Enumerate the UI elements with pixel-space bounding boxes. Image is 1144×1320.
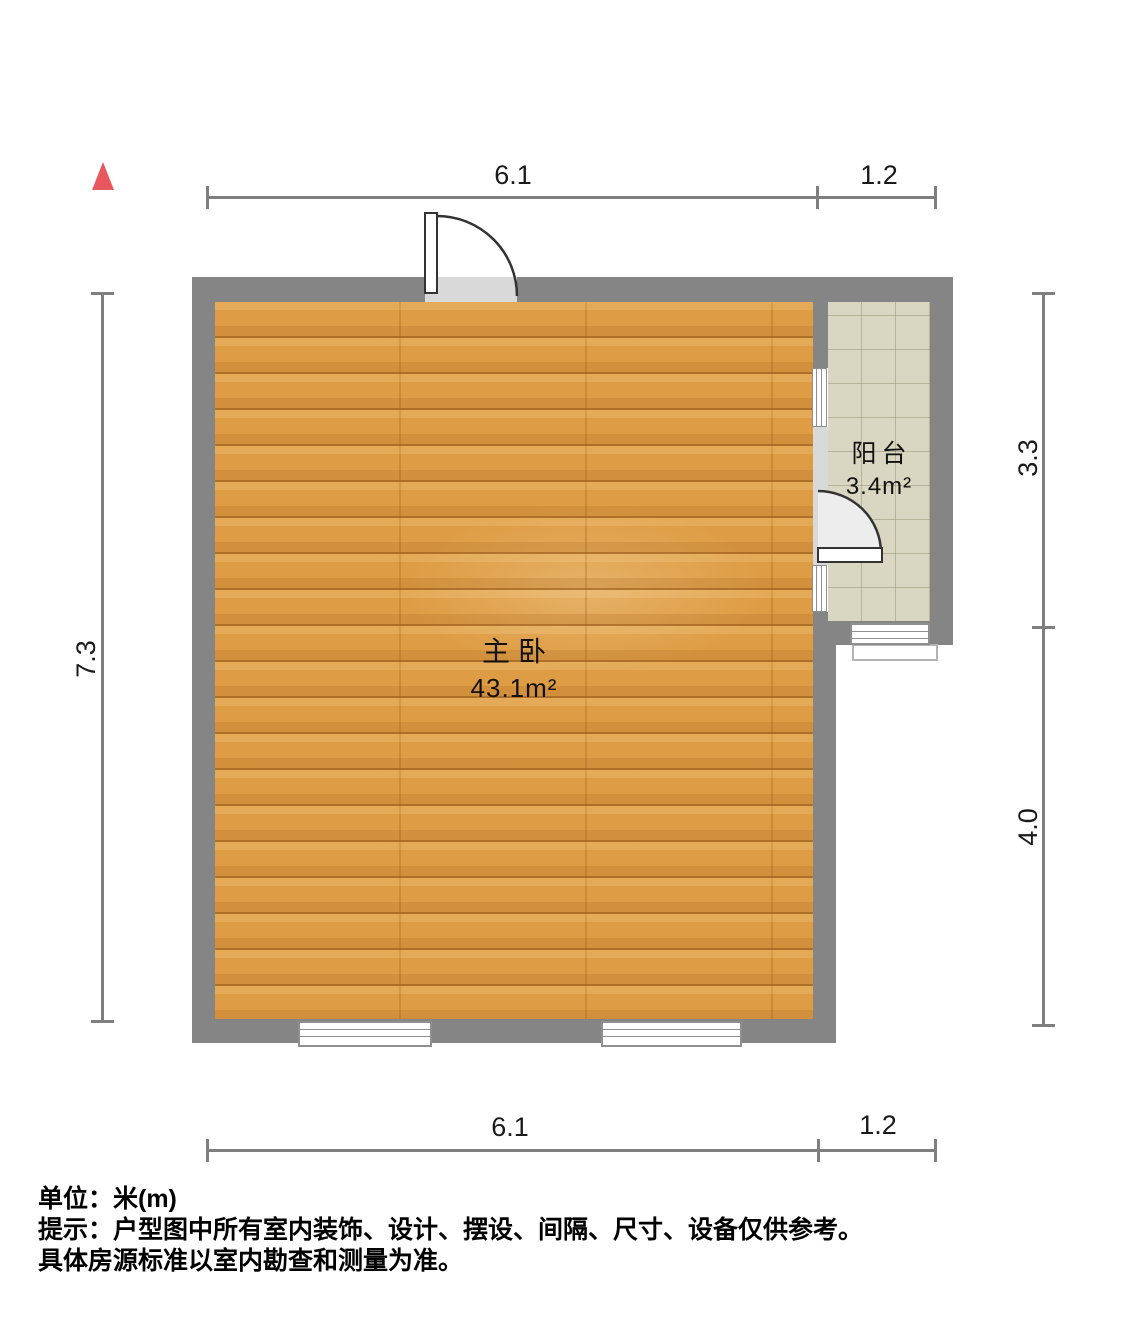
window-partition-upper	[812, 368, 827, 427]
dim-tick	[1032, 292, 1055, 295]
dim-label-left-7-3: 7.3	[56, 619, 116, 699]
dim-line-bottom	[207, 1149, 937, 1152]
wall-right	[813, 621, 836, 1043]
master-bedroom-name: 主卧	[364, 630, 664, 670]
dim-label-top-1-2: 1.2	[809, 160, 949, 191]
dim-tick	[934, 1139, 937, 1162]
window-bottom-right	[601, 1021, 742, 1047]
dim-tick	[817, 1139, 820, 1162]
disclaimer-line-1: 提示：户型图中所有室内装饰、设计、摆设、间隔、尺寸、设备仅供参考。	[38, 1215, 863, 1246]
unit-note: 单位：米(m)	[38, 1184, 863, 1215]
dim-label-top-6-1: 6.1	[438, 160, 588, 191]
disclaimer-line-2: 具体房源标准以室内勘查和测量为准。	[38, 1246, 863, 1277]
wall-left	[192, 277, 215, 1043]
dim-tick	[206, 1139, 209, 1162]
wall-partition-upper	[813, 302, 828, 368]
dim-tick	[1032, 626, 1055, 629]
floor-plan-canvas: 6.1 1.2 6.1 1.2 7.3 3.3 4.0	[0, 0, 1144, 1320]
dim-tick	[91, 1020, 114, 1023]
window-bottom-left	[298, 1021, 432, 1047]
balcony-area: 3.4m²	[824, 473, 934, 501]
dim-tick	[91, 292, 114, 295]
master-bedroom-area: 43.1m²	[364, 673, 664, 704]
dim-tick	[206, 186, 209, 209]
window-partition-lower	[812, 565, 827, 612]
dim-label-bottom-6-1: 6.1	[435, 1112, 585, 1143]
window-balcony-bottom	[850, 623, 930, 645]
entry-door-swing-icon	[420, 210, 525, 302]
wall-top	[192, 277, 953, 302]
dim-label-right-4-0: 4.0	[998, 787, 1058, 867]
dim-label-right-3-3: 3.3	[998, 418, 1058, 498]
balcony-window-sill	[852, 644, 938, 661]
balcony-label: 阳台 3.4m²	[824, 434, 934, 501]
dim-line-top	[207, 196, 937, 199]
north-arrow-icon	[92, 162, 114, 190]
dim-line-right	[1042, 293, 1045, 1027]
footer-notes: 单位：米(m) 提示：户型图中所有室内装饰、设计、摆设、间隔、尺寸、设备仅供参考…	[38, 1184, 863, 1277]
balcony-name: 阳台	[824, 434, 934, 470]
master-bedroom-label: 主卧 43.1m²	[364, 630, 664, 704]
dim-label-bottom-1-2: 1.2	[808, 1110, 948, 1141]
dim-tick	[1032, 1024, 1055, 1027]
